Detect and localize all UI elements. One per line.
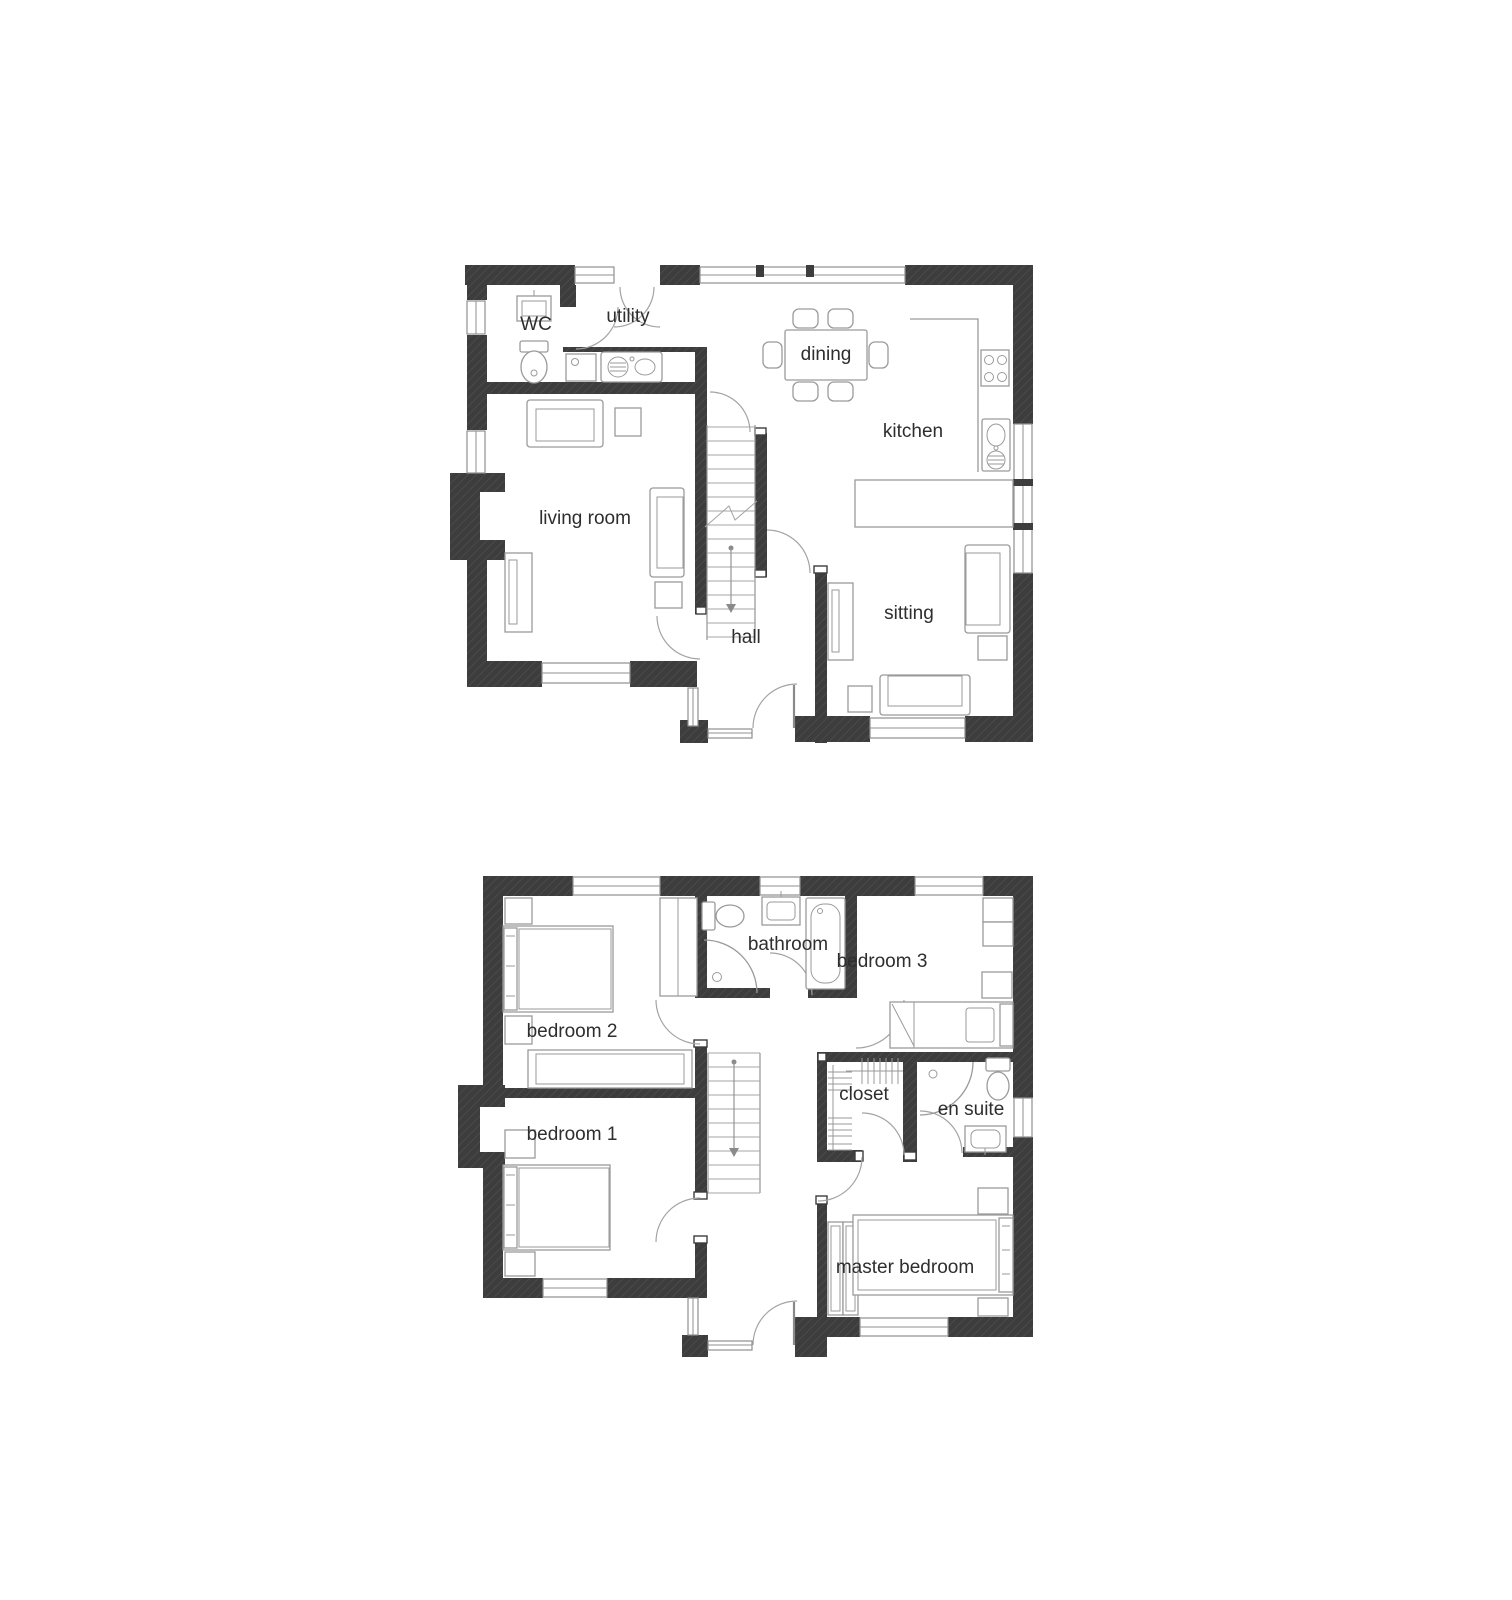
bedroom-2-door-arc [656, 1000, 700, 1044]
first-floor-furniture [503, 898, 1013, 1316]
window [542, 663, 630, 683]
sitting-sofa-right [965, 545, 1010, 633]
window [688, 1298, 698, 1335]
window [688, 688, 698, 726]
bedroom-2-bed [503, 926, 613, 1012]
living-sofa-right [650, 488, 684, 577]
side-table [978, 636, 1007, 660]
room-label-en-suite: en suite [938, 1099, 1005, 1120]
bedside-table [978, 1298, 1008, 1316]
tv-unit [505, 553, 532, 632]
window [700, 265, 905, 283]
window [708, 729, 752, 738]
living-room-door-arc [657, 616, 700, 659]
room-label-wc: WC [520, 314, 552, 335]
room-label-master-bedroom: master bedroom [836, 1257, 974, 1278]
living-sofa-top [527, 400, 603, 447]
window [467, 301, 485, 334]
bedroom-2-wardrobe [660, 898, 697, 996]
utility-sink [601, 352, 662, 382]
room-label-bedroom-2: bedroom 2 [527, 1021, 618, 1042]
room-label-bathroom: bathroom [748, 934, 828, 955]
side-table [655, 582, 682, 608]
front-door-arc [753, 684, 797, 728]
window [1014, 1098, 1032, 1137]
room-label-kitchen: kitchen [883, 421, 943, 442]
room-label-sitting: sitting [884, 603, 934, 624]
bathroom-sink [762, 891, 800, 925]
room-label-dining: dining [801, 344, 852, 365]
bedside-table [978, 1188, 1008, 1214]
room-label-closet: closet [839, 1084, 889, 1105]
bedroom-1-bed [503, 1165, 610, 1250]
bedside-table [505, 1252, 535, 1276]
first-floor-plan: bathroom bedroom 3 bedroom 2 bedroom 1 c… [458, 876, 1033, 1357]
staircase-first [708, 1053, 760, 1193]
room-label-bedroom-3: bedroom 3 [837, 951, 928, 972]
window [543, 1279, 607, 1297]
window [860, 1318, 948, 1336]
kitchen-sink [982, 419, 1010, 471]
en-suite-toilet [986, 1058, 1010, 1100]
sitting-door-arc [767, 530, 810, 573]
hob [981, 350, 1009, 386]
room-label-utility: utility [606, 306, 650, 327]
bedroom-3-bed [890, 1002, 1013, 1048]
washing-machine [566, 354, 596, 381]
sitting-sofa-bottom [880, 675, 970, 715]
bedroom-2-desk [528, 1050, 692, 1088]
room-label-hall: hall [731, 627, 761, 648]
window [870, 718, 965, 738]
window [467, 431, 485, 473]
landing-door-arc [753, 1301, 797, 1345]
floor-plan-page: WC utility dining kitchen living room ha… [0, 0, 1512, 1600]
room-label-bedroom-1: bedroom 1 [527, 1124, 618, 1145]
window [573, 877, 660, 895]
bathroom-toilet [702, 902, 744, 930]
bedroom-3-wardrobe [983, 898, 1013, 946]
master-bed [853, 1215, 1013, 1295]
en-suite-sink [965, 1126, 1006, 1155]
window [708, 1341, 752, 1350]
window [575, 267, 614, 283]
sitting-sideboard [828, 583, 853, 660]
bedside-table [505, 898, 532, 924]
room-label-living-room: living room [539, 508, 631, 529]
wc-toilet [520, 341, 548, 383]
closet-door-arc [862, 1113, 904, 1155]
side-table [848, 686, 872, 712]
bedside-table [982, 972, 1012, 998]
master-bedroom-door-arc [818, 1157, 862, 1201]
floor-plan-canvas: WC utility dining kitchen living room ha… [0, 0, 1512, 1600]
staircase-ground [705, 425, 757, 640]
kitchen-door-arc [710, 392, 750, 432]
side-table [615, 408, 641, 436]
window [915, 877, 983, 895]
window [760, 877, 800, 895]
ground-floor-plan: WC utility dining kitchen living room ha… [450, 265, 1033, 743]
window [1013, 424, 1033, 573]
